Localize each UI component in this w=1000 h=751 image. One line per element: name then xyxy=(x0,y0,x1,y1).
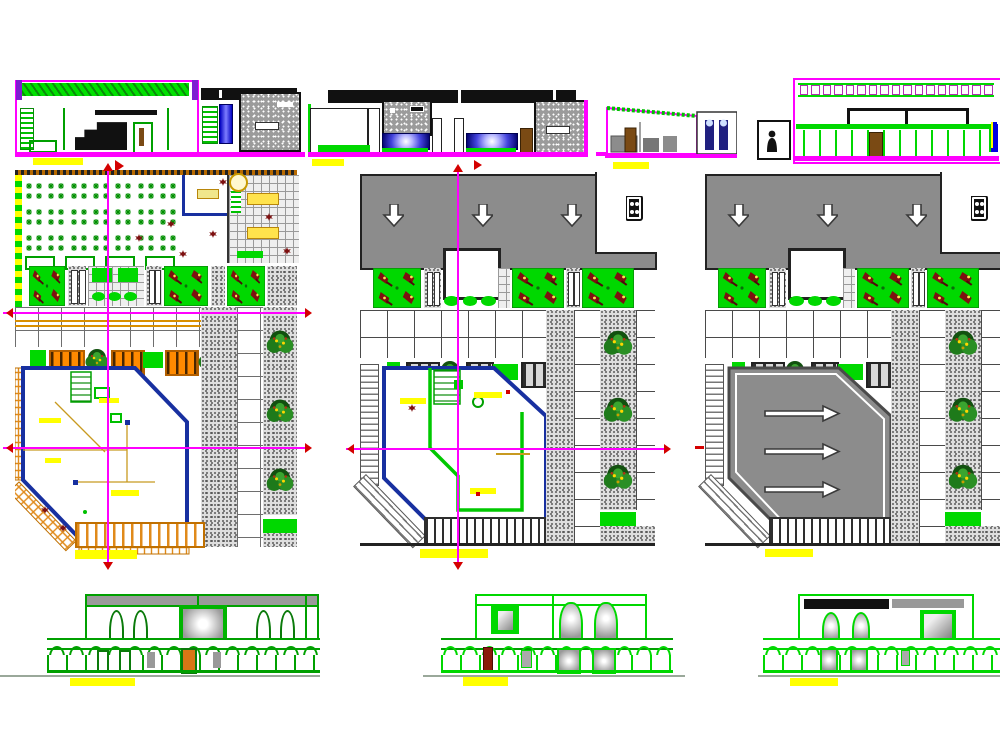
dark-red-door xyxy=(483,647,493,672)
planter-box xyxy=(227,266,265,306)
parapet-opening xyxy=(823,85,832,95)
arch-window-lower xyxy=(850,648,868,672)
base-line xyxy=(441,670,673,673)
planter-box xyxy=(164,266,208,306)
timber-door xyxy=(520,128,533,154)
grid-marker xyxy=(453,562,463,575)
roof-hatch-band xyxy=(19,83,189,96)
tree-icon xyxy=(947,392,979,428)
cad-drawing-canvas xyxy=(0,0,1000,751)
planter-box xyxy=(857,268,909,308)
corner-post-left xyxy=(16,80,22,100)
panel-plan-upper xyxy=(358,172,655,562)
tree-icon xyxy=(602,325,634,361)
centerline-vertical xyxy=(107,165,109,565)
plant-icon xyxy=(135,234,143,242)
parapet-opening xyxy=(926,85,935,95)
dining-table-icon xyxy=(136,181,156,201)
down-arrow-icon xyxy=(560,204,582,228)
tile-strip xyxy=(636,310,655,510)
parapet-opening xyxy=(811,85,820,95)
dining-table-icon xyxy=(113,233,133,253)
grid-marker xyxy=(305,308,317,318)
grid-marker xyxy=(453,159,463,172)
arch-window xyxy=(133,610,148,640)
arch-window xyxy=(594,602,618,642)
dining-table-icon xyxy=(46,207,66,227)
person-figure xyxy=(767,131,777,152)
tree-column xyxy=(945,310,981,510)
parapet-opening xyxy=(903,85,912,95)
kitchen-zone xyxy=(227,175,299,263)
parapet-opening xyxy=(857,85,866,95)
entry-door-frame xyxy=(757,120,791,160)
bench-slats xyxy=(911,268,925,308)
roof-vents xyxy=(727,204,927,228)
planter-box xyxy=(512,268,564,308)
bench-slats xyxy=(424,268,441,308)
title-highlight xyxy=(70,678,135,686)
parapet-opening xyxy=(800,85,809,95)
down-arrow-icon xyxy=(905,204,927,228)
bench-slats xyxy=(566,268,580,308)
tile-strip xyxy=(237,307,263,547)
section-body xyxy=(15,80,199,156)
roof-cutout xyxy=(940,172,1000,254)
panel-elevation-bottom-left xyxy=(35,590,320,690)
tree-icon xyxy=(947,325,979,361)
down-arrow-icon xyxy=(816,204,838,228)
arch-window-lower xyxy=(820,648,838,672)
column-pair xyxy=(432,118,464,152)
title-highlight xyxy=(613,162,649,169)
planter-box xyxy=(582,268,634,308)
skylight xyxy=(443,248,501,300)
parapet-opening xyxy=(984,85,993,95)
seat-strip xyxy=(705,364,724,486)
bench-slats xyxy=(211,266,225,306)
canopy-beam xyxy=(95,110,157,115)
room-table xyxy=(197,189,219,199)
dining-table-icon xyxy=(158,181,178,201)
timber-door xyxy=(869,132,883,158)
upper-story xyxy=(798,594,974,642)
gray-panel xyxy=(901,650,910,666)
parapet-opening xyxy=(880,85,889,95)
ground-line xyxy=(308,152,588,157)
wall-line xyxy=(63,108,65,150)
lawn-strip xyxy=(600,512,636,526)
paving-strip xyxy=(201,307,237,547)
slab-band xyxy=(796,124,996,129)
paving-strip xyxy=(546,310,574,545)
ground-line xyxy=(758,675,1000,677)
base-line xyxy=(763,670,1000,673)
tree-icon xyxy=(265,325,295,359)
annex-louvers xyxy=(202,106,218,144)
grid-marker xyxy=(103,562,113,575)
bench-slats xyxy=(769,268,786,308)
upper-story xyxy=(85,594,319,642)
stone-block xyxy=(239,92,301,152)
title-highlight xyxy=(33,158,83,165)
dining-table-icon xyxy=(24,207,44,227)
plant-icon xyxy=(265,213,273,221)
parapet-opening xyxy=(834,85,843,95)
lawn-strip xyxy=(263,519,297,533)
gray-panel xyxy=(213,652,221,668)
parapet-openings xyxy=(798,83,994,97)
counter xyxy=(247,227,279,239)
window-frame xyxy=(97,650,109,672)
right-post xyxy=(584,100,588,152)
dining-area-tables xyxy=(23,178,179,256)
grid-marker xyxy=(342,444,354,454)
parapet-opening xyxy=(938,85,947,95)
dining-table-icon xyxy=(69,181,89,201)
gray-band xyxy=(892,599,964,608)
gray-panel xyxy=(521,650,532,668)
gray-panel xyxy=(147,652,155,668)
window-frame xyxy=(119,650,131,672)
dining-table-icon xyxy=(113,181,133,201)
roof-vents xyxy=(382,204,582,228)
tree-icon xyxy=(265,463,295,497)
bench-slats xyxy=(146,266,162,306)
counter xyxy=(247,193,279,205)
title-highlight xyxy=(463,677,508,686)
right-post-accent xyxy=(991,122,997,148)
large-section xyxy=(793,78,1000,164)
plant-icon xyxy=(283,247,291,255)
dining-table-icon xyxy=(113,207,133,227)
panel-elevation-bottom-right xyxy=(763,588,1000,690)
tree-icon xyxy=(947,459,979,495)
title-highlight xyxy=(420,549,488,558)
center-deck xyxy=(88,266,144,306)
stair-flight xyxy=(75,116,127,150)
private-room xyxy=(182,175,230,216)
paving-strip xyxy=(891,310,919,545)
skylight xyxy=(788,248,846,300)
parapet-opening xyxy=(949,85,958,95)
title-highlight xyxy=(75,550,137,559)
arch-window xyxy=(109,610,124,640)
bottom-seat-row xyxy=(424,517,546,545)
green-window xyxy=(491,606,519,634)
bottom-seat-row xyxy=(75,522,205,548)
bottom-seat-row xyxy=(769,517,891,545)
planter-box xyxy=(927,268,979,308)
grid-marker xyxy=(1,443,13,453)
dining-table-icon xyxy=(46,181,66,201)
tree-column xyxy=(600,310,636,510)
stone-block xyxy=(534,100,586,154)
panel-section-top-left xyxy=(15,78,299,170)
section-annex xyxy=(201,88,297,152)
down-arrow-icon xyxy=(382,204,404,228)
parapet-opening xyxy=(869,85,878,95)
lawn-strip xyxy=(945,512,981,526)
dining-table-icon xyxy=(69,207,89,227)
grid-marker xyxy=(305,443,317,453)
centerline-horizontal xyxy=(346,448,666,450)
ground-line xyxy=(0,675,320,677)
ground-line xyxy=(15,152,305,157)
planter-box xyxy=(373,268,421,308)
bottom-border xyxy=(705,543,1000,546)
small-section xyxy=(605,102,737,158)
bottom-border xyxy=(360,543,655,546)
annex-window xyxy=(219,104,233,144)
centerline-horizontal xyxy=(3,312,309,314)
dining-table-icon xyxy=(46,233,66,253)
arch-window xyxy=(559,602,583,642)
dining-table-icon xyxy=(24,181,44,201)
panel-plan-roof xyxy=(703,172,1000,562)
panel-elevation-top-middle xyxy=(308,84,588,168)
black-band xyxy=(804,599,889,609)
panel-elevation-bottom-middle xyxy=(433,590,680,690)
stove-icon xyxy=(626,196,644,222)
grid-marker xyxy=(664,444,676,454)
tree-icon xyxy=(602,459,634,495)
plant-icon xyxy=(179,250,187,258)
ground-line xyxy=(793,156,999,161)
corner-post-right xyxy=(192,80,198,100)
parapet-opening xyxy=(961,85,970,95)
dining-table-icon xyxy=(136,207,156,227)
down-arrow-icon xyxy=(727,204,749,228)
parapet-opening xyxy=(972,85,981,95)
panel-section-top-right xyxy=(605,78,1000,166)
arch-window xyxy=(256,610,271,640)
title-highlight xyxy=(790,678,838,686)
round-table xyxy=(229,173,248,192)
stone-block xyxy=(382,100,432,136)
parapet-opening xyxy=(846,85,855,95)
centerline-horizontal xyxy=(3,447,309,449)
panel-plan-ground xyxy=(15,170,297,562)
datum-flag xyxy=(474,160,487,170)
plant-icon xyxy=(167,220,175,228)
parapet-opening xyxy=(915,85,924,95)
planter-strip xyxy=(318,145,370,152)
title-highlight xyxy=(312,159,344,166)
centerline-vertical xyxy=(457,166,459,566)
door-frame xyxy=(133,122,153,154)
plant-icon xyxy=(219,178,227,186)
bench-slats xyxy=(68,266,86,306)
seat-strip xyxy=(360,364,379,486)
title-highlight xyxy=(765,549,813,557)
base-line xyxy=(47,670,320,673)
tree-column xyxy=(263,307,297,515)
dining-table-icon xyxy=(69,233,89,253)
grid-marker xyxy=(103,158,113,171)
planter-box xyxy=(29,266,65,306)
glazing-mullions xyxy=(803,130,989,156)
tile-strip xyxy=(981,310,1000,510)
dining-table-icon xyxy=(24,233,44,253)
tree-icon xyxy=(265,394,295,428)
stove-icon xyxy=(971,196,989,222)
tree-icon xyxy=(602,392,634,428)
wall-line xyxy=(167,108,169,150)
parapet-opening xyxy=(892,85,901,95)
arch-window xyxy=(280,610,295,640)
down-arrow-icon xyxy=(471,204,493,228)
grid-marker xyxy=(695,446,704,449)
upper-story xyxy=(475,594,647,642)
tile-strip xyxy=(574,310,600,545)
grid-marker xyxy=(1,308,13,318)
dining-table-icon xyxy=(158,233,178,253)
left-edge-planter xyxy=(15,175,22,325)
arcade-columns xyxy=(763,655,1000,670)
tile-strip xyxy=(919,310,945,545)
plant-icon xyxy=(209,230,217,238)
planter-box xyxy=(718,268,766,308)
